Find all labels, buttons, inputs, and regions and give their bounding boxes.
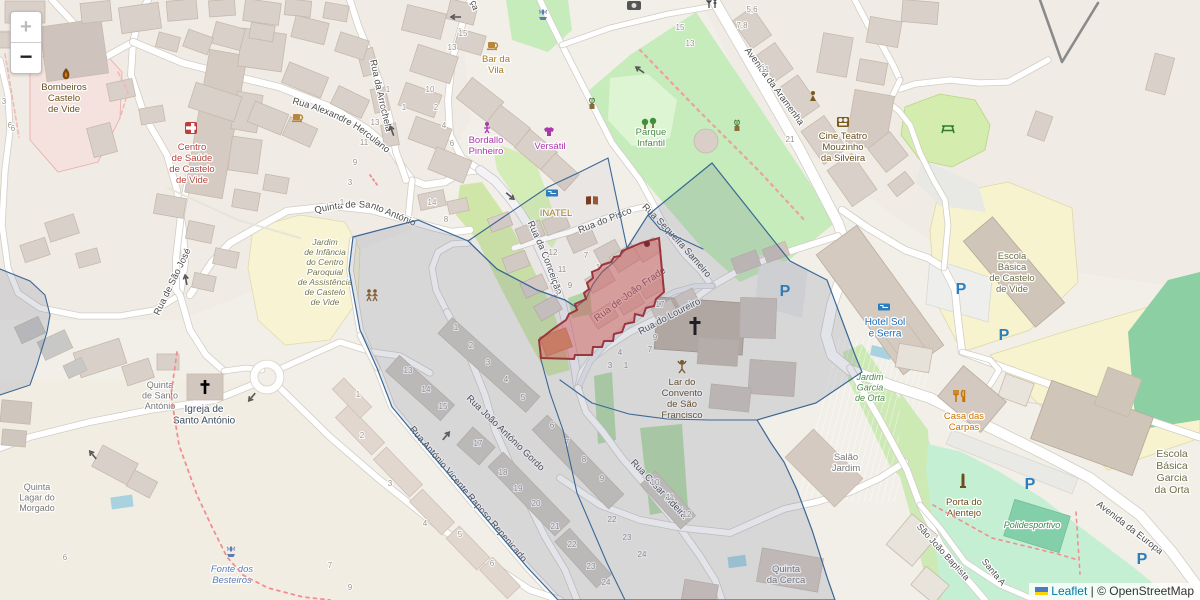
svg-text:Igreja de: Igreja de [185,404,224,415]
svg-text:15: 15 [459,29,468,38]
svg-text:Jardim: Jardim [311,237,338,247]
svg-text:13: 13 [686,39,695,48]
svg-text:Porta do: Porta do [946,497,982,508]
svg-text:11: 11 [761,65,770,74]
svg-text:Castelo: Castelo [48,93,80,104]
svg-text:3: 3 [348,178,353,187]
svg-text:Alentejo: Alentejo [947,508,981,519]
svg-text:7;8: 7;8 [736,21,748,30]
svg-text:Quinta: Quinta [24,482,51,492]
svg-text:Garcia: Garcia [1157,472,1188,484]
svg-text:4: 4 [442,121,447,130]
svg-text:2: 2 [434,103,439,112]
svg-text:da Silveira: da Silveira [821,153,866,164]
svg-text:de Vide: de Vide [176,175,208,186]
svg-text:Polidesportivo: Polidesportivo [1004,520,1061,530]
svg-text:Escola: Escola [1156,448,1188,460]
svg-text:Casa das: Casa das [944,411,984,422]
svg-text:de Castelo: de Castelo [989,273,1034,284]
svg-text:P: P [999,327,1010,344]
svg-text:Centro: Centro [178,142,207,153]
svg-text:6: 6 [450,139,455,148]
svg-text:Santo António: Santo António [173,416,236,427]
svg-text:5;6: 5;6 [746,5,758,14]
svg-text:do Centro: do Centro [306,257,344,267]
svg-text:Escola: Escola [998,251,1027,262]
svg-text:Bordallo: Bordallo [469,135,504,146]
svg-text:Pinheiro: Pinheiro [469,146,504,157]
svg-text:e Serra: e Serra [869,329,902,340]
svg-text:3: 3 [388,479,393,488]
svg-text:Paroquial: Paroquial [307,267,344,277]
svg-text:Jardim: Jardim [832,463,861,474]
svg-text:4: 4 [423,519,428,528]
svg-text:Fonte dos: Fonte dos [211,564,253,575]
svg-text:de Saúde: de Saúde [172,153,213,164]
svg-text:de Vide: de Vide [311,297,340,307]
svg-text:Mouzinho: Mouzinho [822,142,863,153]
svg-text:Versátil: Versátil [534,141,565,152]
svg-text:António: António [145,401,176,411]
svg-text:de Vide: de Vide [996,284,1028,295]
svg-text:6: 6 [490,559,495,568]
svg-text:da Orta: da Orta [1154,484,1189,496]
svg-text:8: 8 [444,215,449,224]
svg-text:de Orta: de Orta [855,393,885,403]
svg-text:13: 13 [448,43,457,52]
svg-text:11: 11 [360,138,369,147]
svg-text:Quinta: Quinta [147,380,174,390]
svg-text:P: P [1137,551,1148,568]
svg-text:6: 6 [11,124,16,133]
svg-text:Salão: Salão [834,452,858,463]
svg-text:21: 21 [786,135,795,144]
svg-text:5: 5 [458,530,463,539]
svg-text:1: 1 [356,390,361,399]
svg-text:de Castelo: de Castelo [169,164,214,175]
svg-text:Garcia: Garcia [857,383,884,393]
svg-text:Bombeiros: Bombeiros [41,82,87,93]
svg-text:9: 9 [348,583,353,592]
svg-text:de Infância: de Infância [304,247,346,257]
svg-text:2: 2 [360,431,365,440]
svg-text:de Santo: de Santo [142,391,178,401]
svg-text:Parque: Parque [636,127,667,138]
svg-text:6: 6 [63,553,68,562]
svg-text:Básica: Básica [998,262,1027,273]
svg-text:de Castelo: de Castelo [305,287,346,297]
svg-text:Infantil: Infantil [637,138,665,149]
svg-text:Cine Teatro: Cine Teatro [819,131,867,142]
svg-text:1: 1 [340,198,345,207]
svg-text:de Vide: de Vide [48,104,80,115]
svg-text:P: P [956,281,967,298]
svg-text:14: 14 [428,198,437,207]
svg-text:P: P [1025,476,1036,493]
svg-text:Lagar do: Lagar do [19,493,55,503]
svg-text:7: 7 [328,561,333,570]
svg-text:15: 15 [676,23,685,32]
svg-text:Morgado: Morgado [19,503,55,513]
svg-text:1: 1 [402,103,407,112]
svg-text:Básica: Básica [1156,460,1188,472]
svg-text:Hotel Sol: Hotel Sol [865,317,906,328]
svg-text:Bar da: Bar da [482,54,511,65]
svg-text:Carpas: Carpas [949,422,980,433]
svg-text:13: 13 [371,118,380,127]
svg-text:1: 1 [386,85,391,94]
svg-text:Vila: Vila [488,65,504,76]
svg-text:3: 3 [2,97,7,106]
svg-text:10: 10 [426,85,435,94]
svg-text:9: 9 [353,158,358,167]
svg-text:de Assistência: de Assistência [298,277,353,287]
